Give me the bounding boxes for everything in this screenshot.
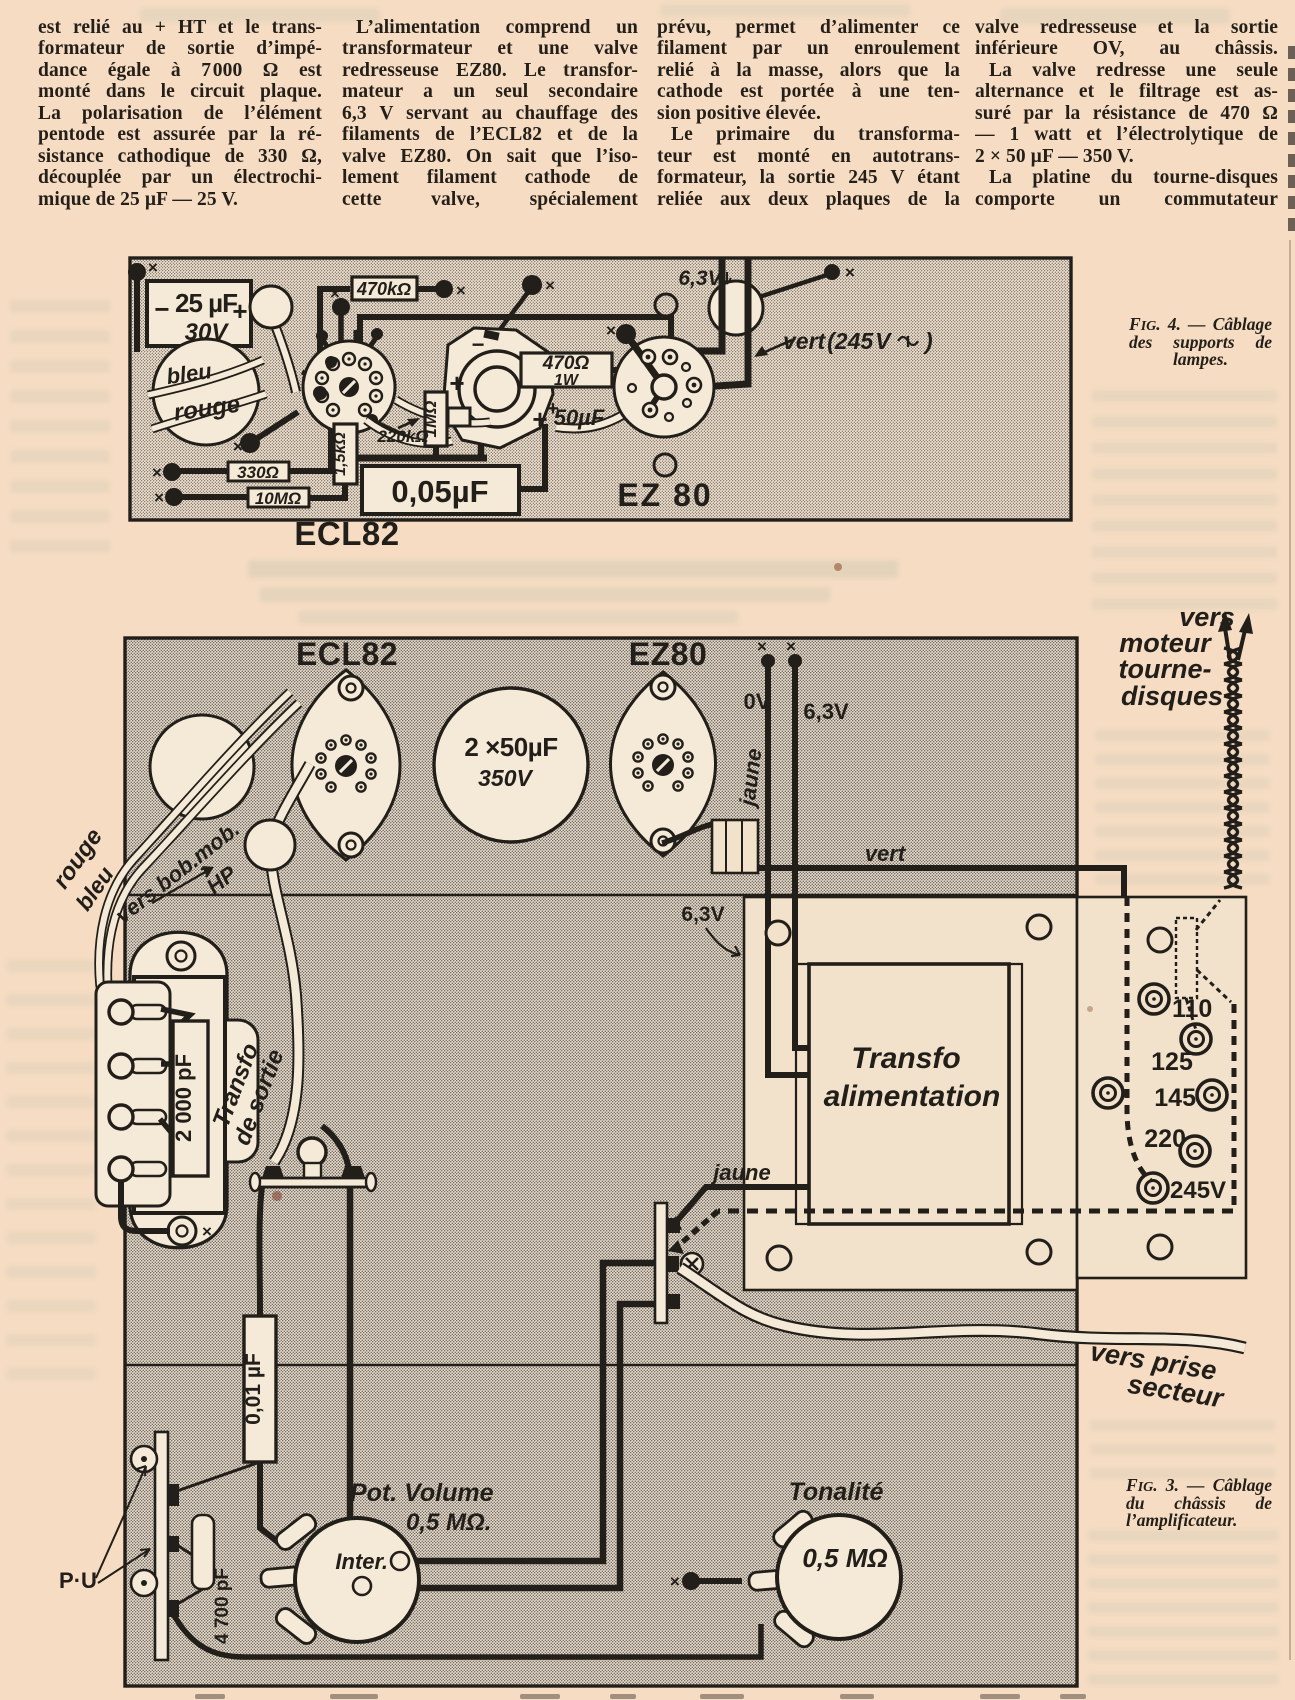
svg-text:220kΩ: 220kΩ (376, 427, 428, 446)
svg-text:ECL82: ECL82 (296, 636, 398, 672)
svg-text:×: × (456, 281, 466, 300)
svg-text:0,05µF: 0,05µF (391, 474, 488, 509)
svg-text:EZ80: EZ80 (629, 636, 707, 672)
svg-text:Transfo: Transfo (851, 1042, 960, 1075)
svg-text:×: × (154, 488, 164, 507)
svg-text:+: + (532, 404, 547, 434)
svg-text:ECL82: ECL82 (294, 515, 399, 552)
svg-text:Tonalité: Tonalité (789, 1478, 884, 1506)
svg-text:+: + (449, 368, 464, 398)
svg-text:0V: 0V (744, 689, 771, 714)
svg-text:×: × (202, 1222, 212, 1241)
svg-text:0,5 MΩ: 0,5 MΩ (802, 1543, 887, 1573)
svg-text:125: 125 (1151, 1048, 1193, 1076)
svg-text:×: × (845, 263, 855, 282)
svg-text:P·U: P·U (59, 1568, 97, 1593)
svg-text:×: × (670, 1572, 680, 1591)
svg-text:×: × (606, 321, 616, 340)
svg-text:Inter.: Inter. (335, 1549, 388, 1574)
svg-text:jaune: jaune (710, 1160, 770, 1185)
svg-text:350V: 350V (478, 765, 533, 791)
svg-text:alimentation: alimentation (824, 1080, 1001, 1113)
svg-text:tourne-: tourne- (1119, 654, 1212, 684)
svg-text:vert (245 V: vert (245 V (783, 328, 892, 354)
svg-text:330Ω: 330Ω (237, 463, 279, 482)
svg-text:Pot. Volume: Pot. Volume (350, 1479, 494, 1507)
svg-text:1W: 1W (554, 372, 580, 389)
svg-text:×: × (152, 463, 162, 482)
svg-text:1,5kΩ: 1,5kΩ (332, 432, 349, 476)
svg-text:50µF: 50µF (554, 405, 605, 430)
svg-text:25 µF: 25 µF (175, 288, 237, 318)
svg-text:245V: 245V (1170, 1177, 1226, 1204)
svg-text:0,5 MΩ.: 0,5 MΩ. (406, 1509, 491, 1536)
svg-text:0,01 µF: 0,01 µF (242, 1353, 265, 1425)
svg-text:+: + (232, 296, 247, 326)
svg-text:×: × (757, 637, 767, 656)
svg-text:×: × (233, 437, 243, 456)
svg-text:4 700 pF: 4 700 pF (212, 1568, 233, 1644)
svg-text:+: + (547, 398, 559, 420)
svg-text:6,3V: 6,3V (803, 699, 849, 724)
svg-text:−: − (472, 332, 485, 357)
svg-text:470Ω: 470Ω (542, 353, 590, 374)
svg-text:145: 145 (1154, 1084, 1196, 1112)
svg-text:×: × (148, 258, 158, 277)
svg-text:470kΩ: 470kΩ (356, 279, 411, 299)
svg-text:−: − (154, 294, 169, 324)
svg-text:6,3V: 6,3V (678, 267, 723, 290)
svg-text:2 ×50µF: 2 ×50µF (464, 732, 557, 762)
svg-text:EZ 80: EZ 80 (617, 477, 712, 513)
svg-text:×: × (330, 284, 340, 303)
svg-text:6,3V: 6,3V (681, 903, 724, 926)
svg-text:220: 220 (1144, 1125, 1186, 1153)
svg-text:disques: disques (1121, 681, 1223, 711)
svg-text:×: × (786, 637, 796, 656)
svg-text:2 000 pF: 2 000 pF (171, 1054, 196, 1142)
svg-text:vert: vert (865, 841, 907, 866)
svg-text:10MΩ: 10MΩ (255, 489, 301, 508)
svg-text:×: × (545, 276, 555, 295)
